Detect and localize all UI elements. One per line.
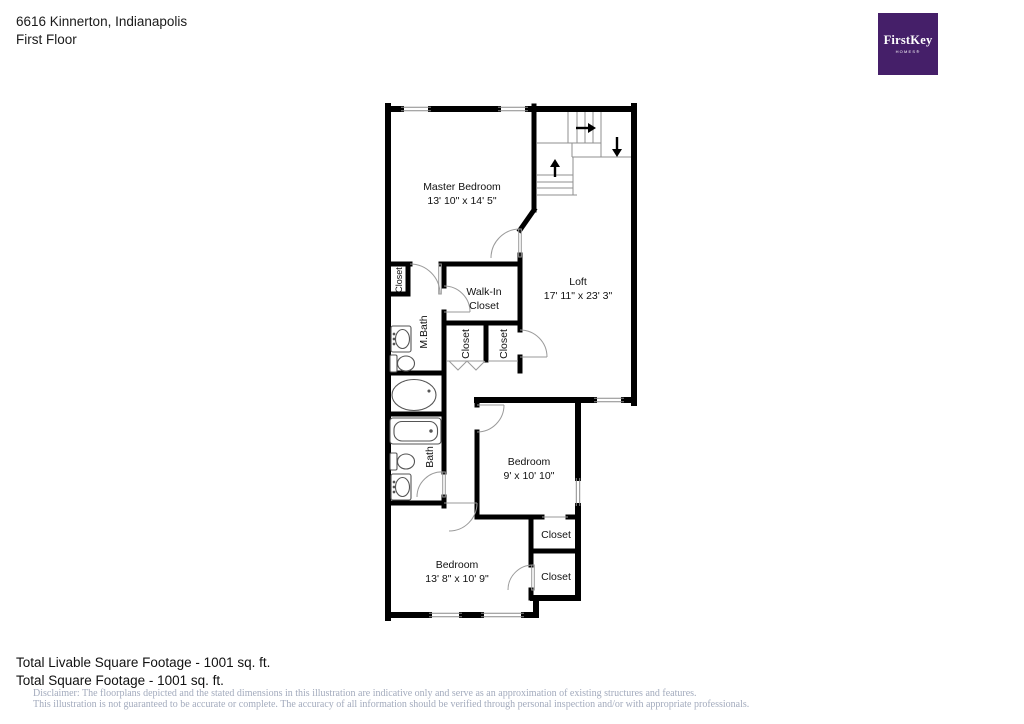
floorplan-page: { "header": { "address": "6616 Kinnerton… [0,0,1024,724]
window-icon [594,398,624,401]
label-closet-hall-right: Closet [498,329,510,359]
window-icon [576,478,579,506]
bath-sink-icon [391,474,411,500]
door-master-to-mbath [410,264,441,294]
total-livable-square-footage: Total Livable Square Footage - 1001 sq. … [16,655,270,670]
door-bedroom-bottom [444,503,477,531]
label-closet-bedroom-lower: Closet [541,571,571,583]
floorplan-svg: Master Bedroom 13' 10" x 14' 5" Loft 17'… [0,0,1024,724]
stairs-arrows [550,123,622,177]
label-bedroom-middle-dims: 9' x 10' 10" [504,470,555,482]
total-square-footage: Total Square Footage - 1001 sq. ft. [16,673,224,688]
label-master-bedroom-dims: 13' 10" x 14' 5" [427,195,497,207]
bathtub-icon [390,418,441,444]
door-master-bedroom [491,229,521,258]
window-icon [498,107,528,110]
bath-toilet-icon [390,453,415,470]
disclaimer-line-1: Disclaimer: The floorplans depicted and … [33,688,697,699]
label-bedroom-bottom-dims: 13' 8" x 10' 9" [425,573,489,585]
label-walk-in-closet-line2: Closet [469,300,499,312]
label-bedroom-middle: Bedroom [508,456,551,468]
label-walk-in-closet-line1: Walk-In [466,286,501,298]
mbath-sink-icon [391,326,411,352]
window-icon [481,613,524,616]
label-m-bath: M.Bath [418,315,430,348]
label-bath: Bath [424,446,436,468]
disclaimer-line-2: This illustration is not guaranteed to b… [33,699,749,710]
door-bedroom-middle [477,405,504,432]
stairs-up-arrow-icon [550,159,560,177]
bifold-closet-doors [447,361,518,370]
label-bedroom-bottom: Bedroom [436,559,479,571]
label-loft-dims: 17' 11" x 23' 3" [544,290,613,302]
label-loft: Loft [569,276,587,288]
label-master-bedroom: Master Bedroom [423,181,501,193]
garden-tub-icon [392,380,436,411]
door-closet-bedroom-lower [508,565,534,590]
interior-walls [388,106,578,598]
stairs-down-arrow-icon [612,137,622,157]
door-loft-closet [520,330,547,357]
window-icon [429,613,462,616]
label-closet-master: Closet [394,267,404,293]
label-closet-hall-left: Closet [460,329,472,359]
mbath-toilet-icon [390,355,415,372]
window-icon [401,107,431,110]
door-bath [417,472,445,497]
label-closet-bedroom-upper: Closet [541,529,571,541]
